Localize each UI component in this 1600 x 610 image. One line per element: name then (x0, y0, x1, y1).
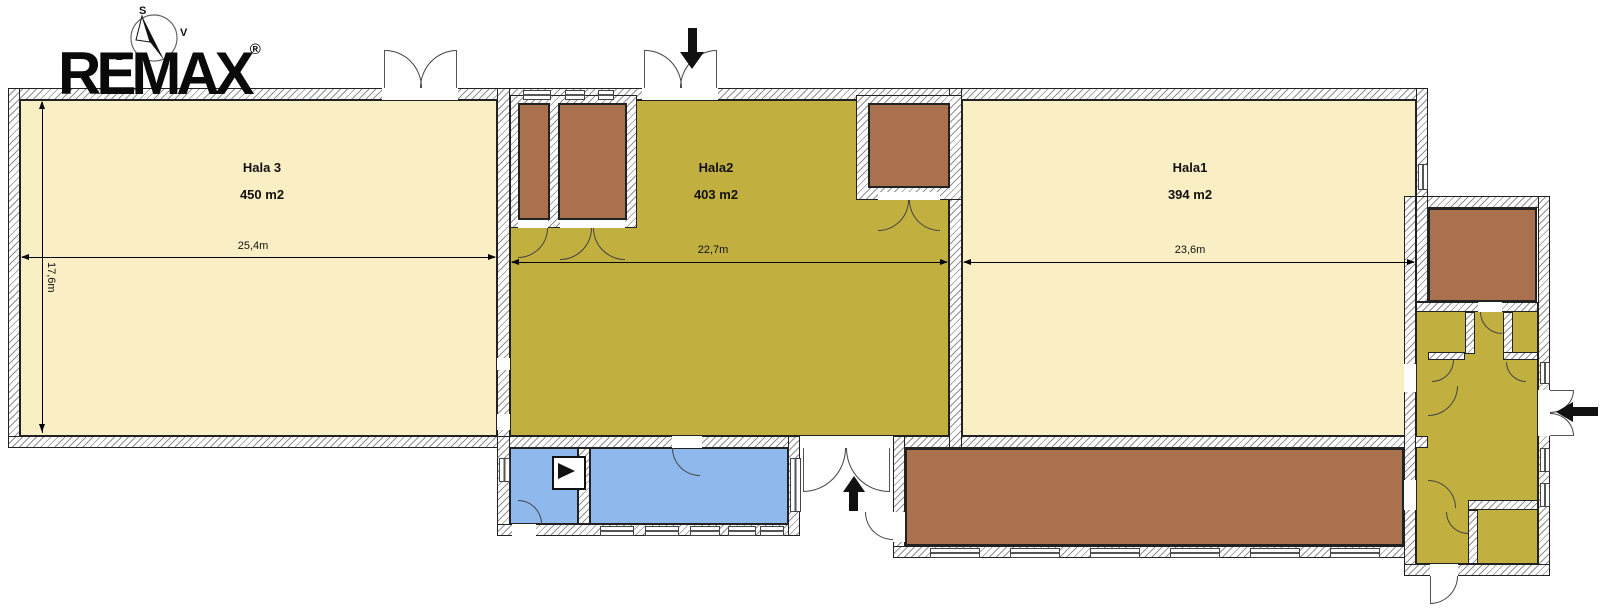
annex-partition-2 (1503, 312, 1513, 354)
opening-annex-left-a (1404, 364, 1416, 392)
dim-line-hala3-width (22, 257, 495, 258)
ramp-triangle-icon (558, 463, 575, 479)
window-blue-left (499, 458, 510, 482)
small-brown-room-2 (558, 103, 627, 220)
door-leaf (1430, 576, 1431, 604)
arrow-shaft (849, 491, 858, 511)
annex-wall-bottom (1404, 564, 1550, 576)
annex-wall-right (1538, 196, 1550, 576)
dim-arrowhead (488, 254, 496, 260)
door-leaf (1550, 435, 1574, 436)
dim-arrowhead (39, 101, 45, 109)
compass-east: V (180, 27, 188, 39)
door-leaf (644, 50, 645, 88)
dim-arrowhead (940, 259, 948, 265)
brown-room-hala2 (868, 103, 950, 188)
hala1-name: Hala1 (1120, 160, 1260, 175)
annex-wall-below-brown (1416, 302, 1538, 312)
arrow-up-icon (843, 476, 865, 492)
window-blue-right (790, 458, 801, 512)
door-leaf (889, 448, 890, 492)
opening-annex-bottom-door (1430, 564, 1458, 576)
door-leaf (384, 50, 385, 88)
annex-wall-left-inner (1416, 196, 1428, 302)
opening-annex-right-door (1538, 390, 1550, 436)
door-arc (1430, 576, 1458, 604)
window-top-2 (565, 90, 585, 100)
annex-brown-room (1428, 208, 1537, 302)
window-top-1 (523, 90, 551, 100)
remax-logo-text: REMAX (58, 40, 250, 107)
opening-blue-small-exit (512, 524, 536, 536)
wall-hala3-hala2 (497, 88, 510, 448)
opening-brown-room-hala2 (878, 192, 940, 200)
compass-north: S (139, 5, 146, 17)
wall-right-hala1 (1416, 88, 1428, 208)
window-annex-right-1 (1540, 362, 1550, 384)
window-hala1-right (1418, 164, 1428, 190)
hala3-name: Hala 3 (192, 160, 332, 175)
blue-annex-wall-left (497, 436, 510, 536)
window-brown-bottom-3 (1090, 548, 1140, 558)
opening-small-brown-2 (560, 220, 625, 228)
window-blue-bottom-4 (728, 526, 756, 536)
hala1-area: 394 m2 (1120, 187, 1260, 202)
annex-partition-4 (1503, 352, 1538, 360)
door-leaf (716, 50, 717, 88)
window-blue-bottom-3 (690, 526, 720, 536)
window-top-3 (598, 90, 614, 100)
opening-blue-large-top (672, 436, 702, 448)
annex-br-room-wall-left (1468, 510, 1478, 564)
hala2-name: Hala2 (646, 160, 786, 175)
remax-logo: REMAX® (58, 42, 261, 104)
dim-arrowhead (39, 424, 45, 432)
door-leaf (1550, 390, 1574, 391)
opening-hala3-top-door (382, 88, 458, 100)
annex-partition-1 (1465, 312, 1475, 354)
registered-mark: ® (250, 41, 261, 58)
annex-partition-3 (1428, 352, 1465, 360)
opening-hala2-top-door (642, 88, 718, 100)
hala1-label: Hala1 394 m2 (1120, 160, 1260, 202)
opening-recess-entrance (800, 436, 893, 448)
hala2-label: Hala2 403 m2 (646, 160, 786, 202)
annex-br-room-wall-top (1468, 500, 1538, 510)
opening-hala3-hala2-b (497, 414, 510, 430)
dim-label-hala1-width: 23,6m (1150, 244, 1230, 256)
door-arc (865, 512, 893, 540)
window-blue-bottom-5 (760, 526, 784, 536)
arrow-shaft (688, 28, 697, 53)
arrow-left-icon (1556, 402, 1573, 422)
window-annex-right-2 (1540, 448, 1550, 472)
small-brown-room-1 (518, 103, 550, 220)
window-blue-bottom-1 (600, 526, 634, 536)
arrow-shaft (1572, 407, 1598, 416)
dim-line-hala3-depth (42, 102, 43, 433)
opening-annex-left-b (1404, 480, 1416, 510)
window-brown-bottom-6 (1330, 548, 1380, 558)
hala3-area: 450 m2 (192, 187, 332, 202)
wall-left (8, 88, 20, 448)
dim-label-hala2-width: 22,7m (673, 244, 753, 256)
door-leaf (803, 448, 804, 492)
window-brown-bottom-4 (1170, 548, 1220, 558)
dim-label-hala3-depth: 17,6m (45, 262, 57, 293)
bottom-brown-room-floor (905, 448, 1404, 546)
hala3-label: Hala 3 450 m2 (192, 160, 332, 202)
dim-line-hala2-width (512, 262, 947, 263)
hala2-area: 403 m2 (646, 187, 786, 202)
door-arc (645, 50, 682, 88)
dim-line-hala1-width (964, 262, 1414, 263)
wall-bottom-main (8, 436, 1428, 448)
dim-label-hala3-width: 25,4m (213, 240, 293, 252)
door-arc (420, 50, 457, 88)
ramp-icon (552, 456, 586, 490)
door-arc (385, 50, 422, 88)
window-brown-bottom-1 (930, 548, 980, 558)
door-leaf (456, 50, 457, 88)
hala3-floor (20, 100, 497, 436)
window-brown-bottom-2 (1010, 548, 1060, 558)
dim-arrowhead (21, 254, 29, 260)
arrow-down-icon (680, 52, 704, 69)
opening-brown-room-left (893, 512, 905, 542)
dim-arrowhead (511, 259, 519, 265)
floor-plan: 25,4m 17,6m 22,7m 23,6m Hala 3 450 m2 Ha… (0, 0, 1600, 610)
window-brown-bottom-5 (1250, 548, 1300, 558)
door-arc (803, 448, 846, 492)
dim-arrowhead (963, 259, 971, 265)
window-blue-bottom-2 (645, 526, 679, 536)
opening-small-brown-1 (518, 220, 548, 228)
dim-arrowhead (1407, 259, 1415, 265)
hala1-floor (962, 100, 1416, 436)
opening-hala3-hala2-a (497, 358, 510, 370)
window-annex-right-3 (1540, 483, 1550, 507)
opening-annex-brown-room (1478, 302, 1502, 312)
